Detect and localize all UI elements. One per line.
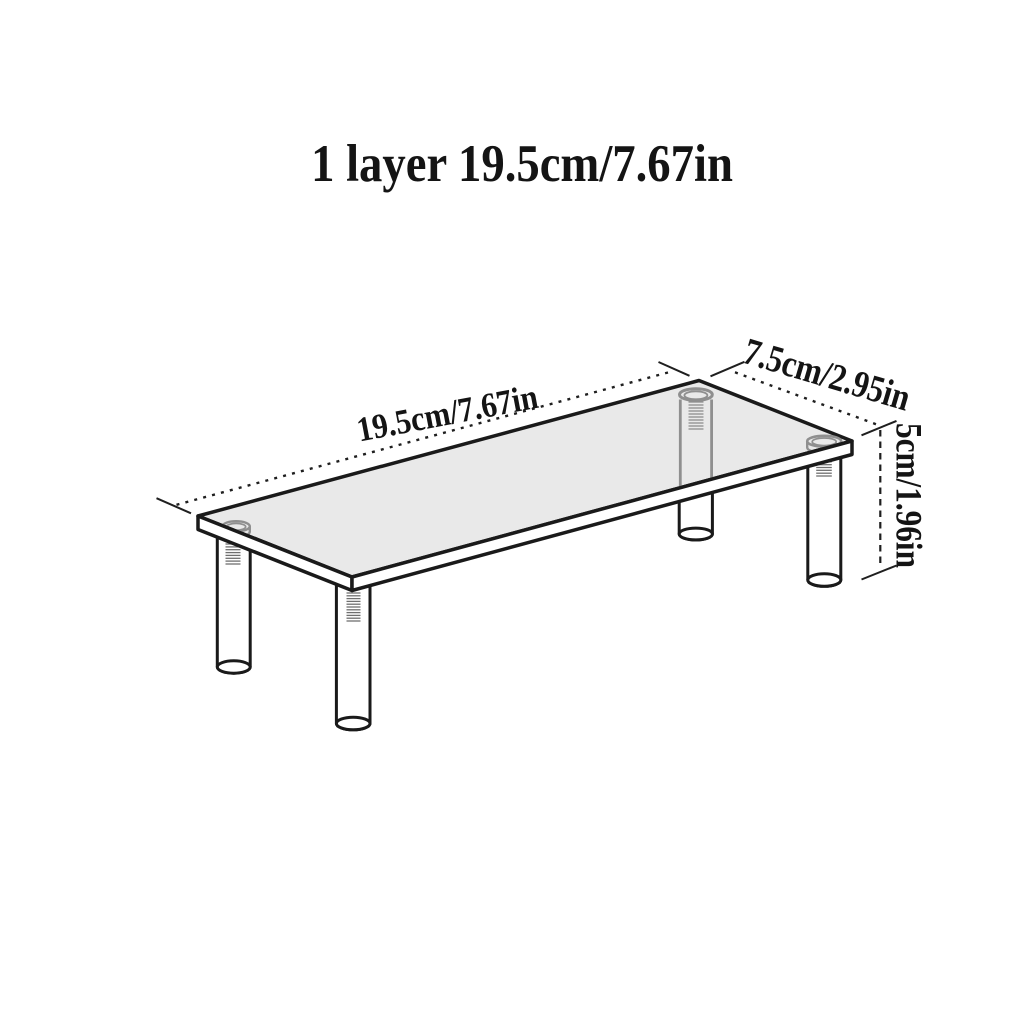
svg-text:1 layer 19.5cm/7.67in: 1 layer 19.5cm/7.67in <box>311 133 733 192</box>
svg-text:5cm/1.96in: 5cm/1.96in <box>888 423 929 568</box>
